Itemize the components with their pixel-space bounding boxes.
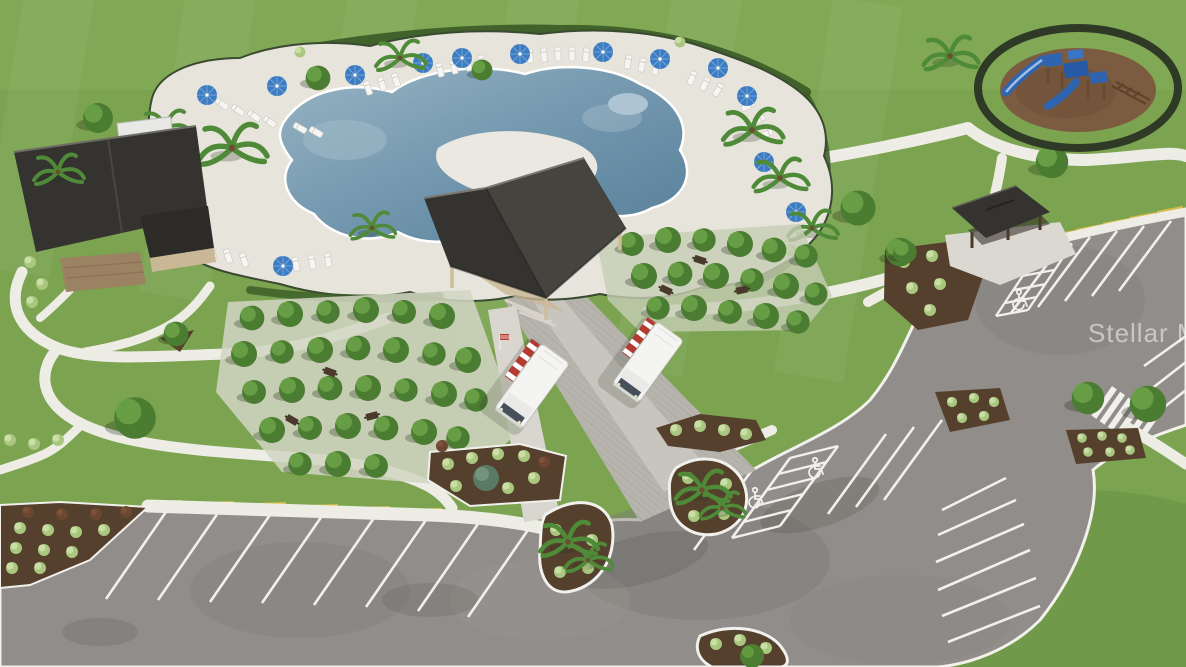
tanning-shelf [608,93,648,115]
rendering-stage: Stellar MLS™ [0,0,1186,667]
watermark: Stellar MLS™ [1088,318,1186,348]
site-rendering: Stellar MLS™ [0,0,1186,667]
